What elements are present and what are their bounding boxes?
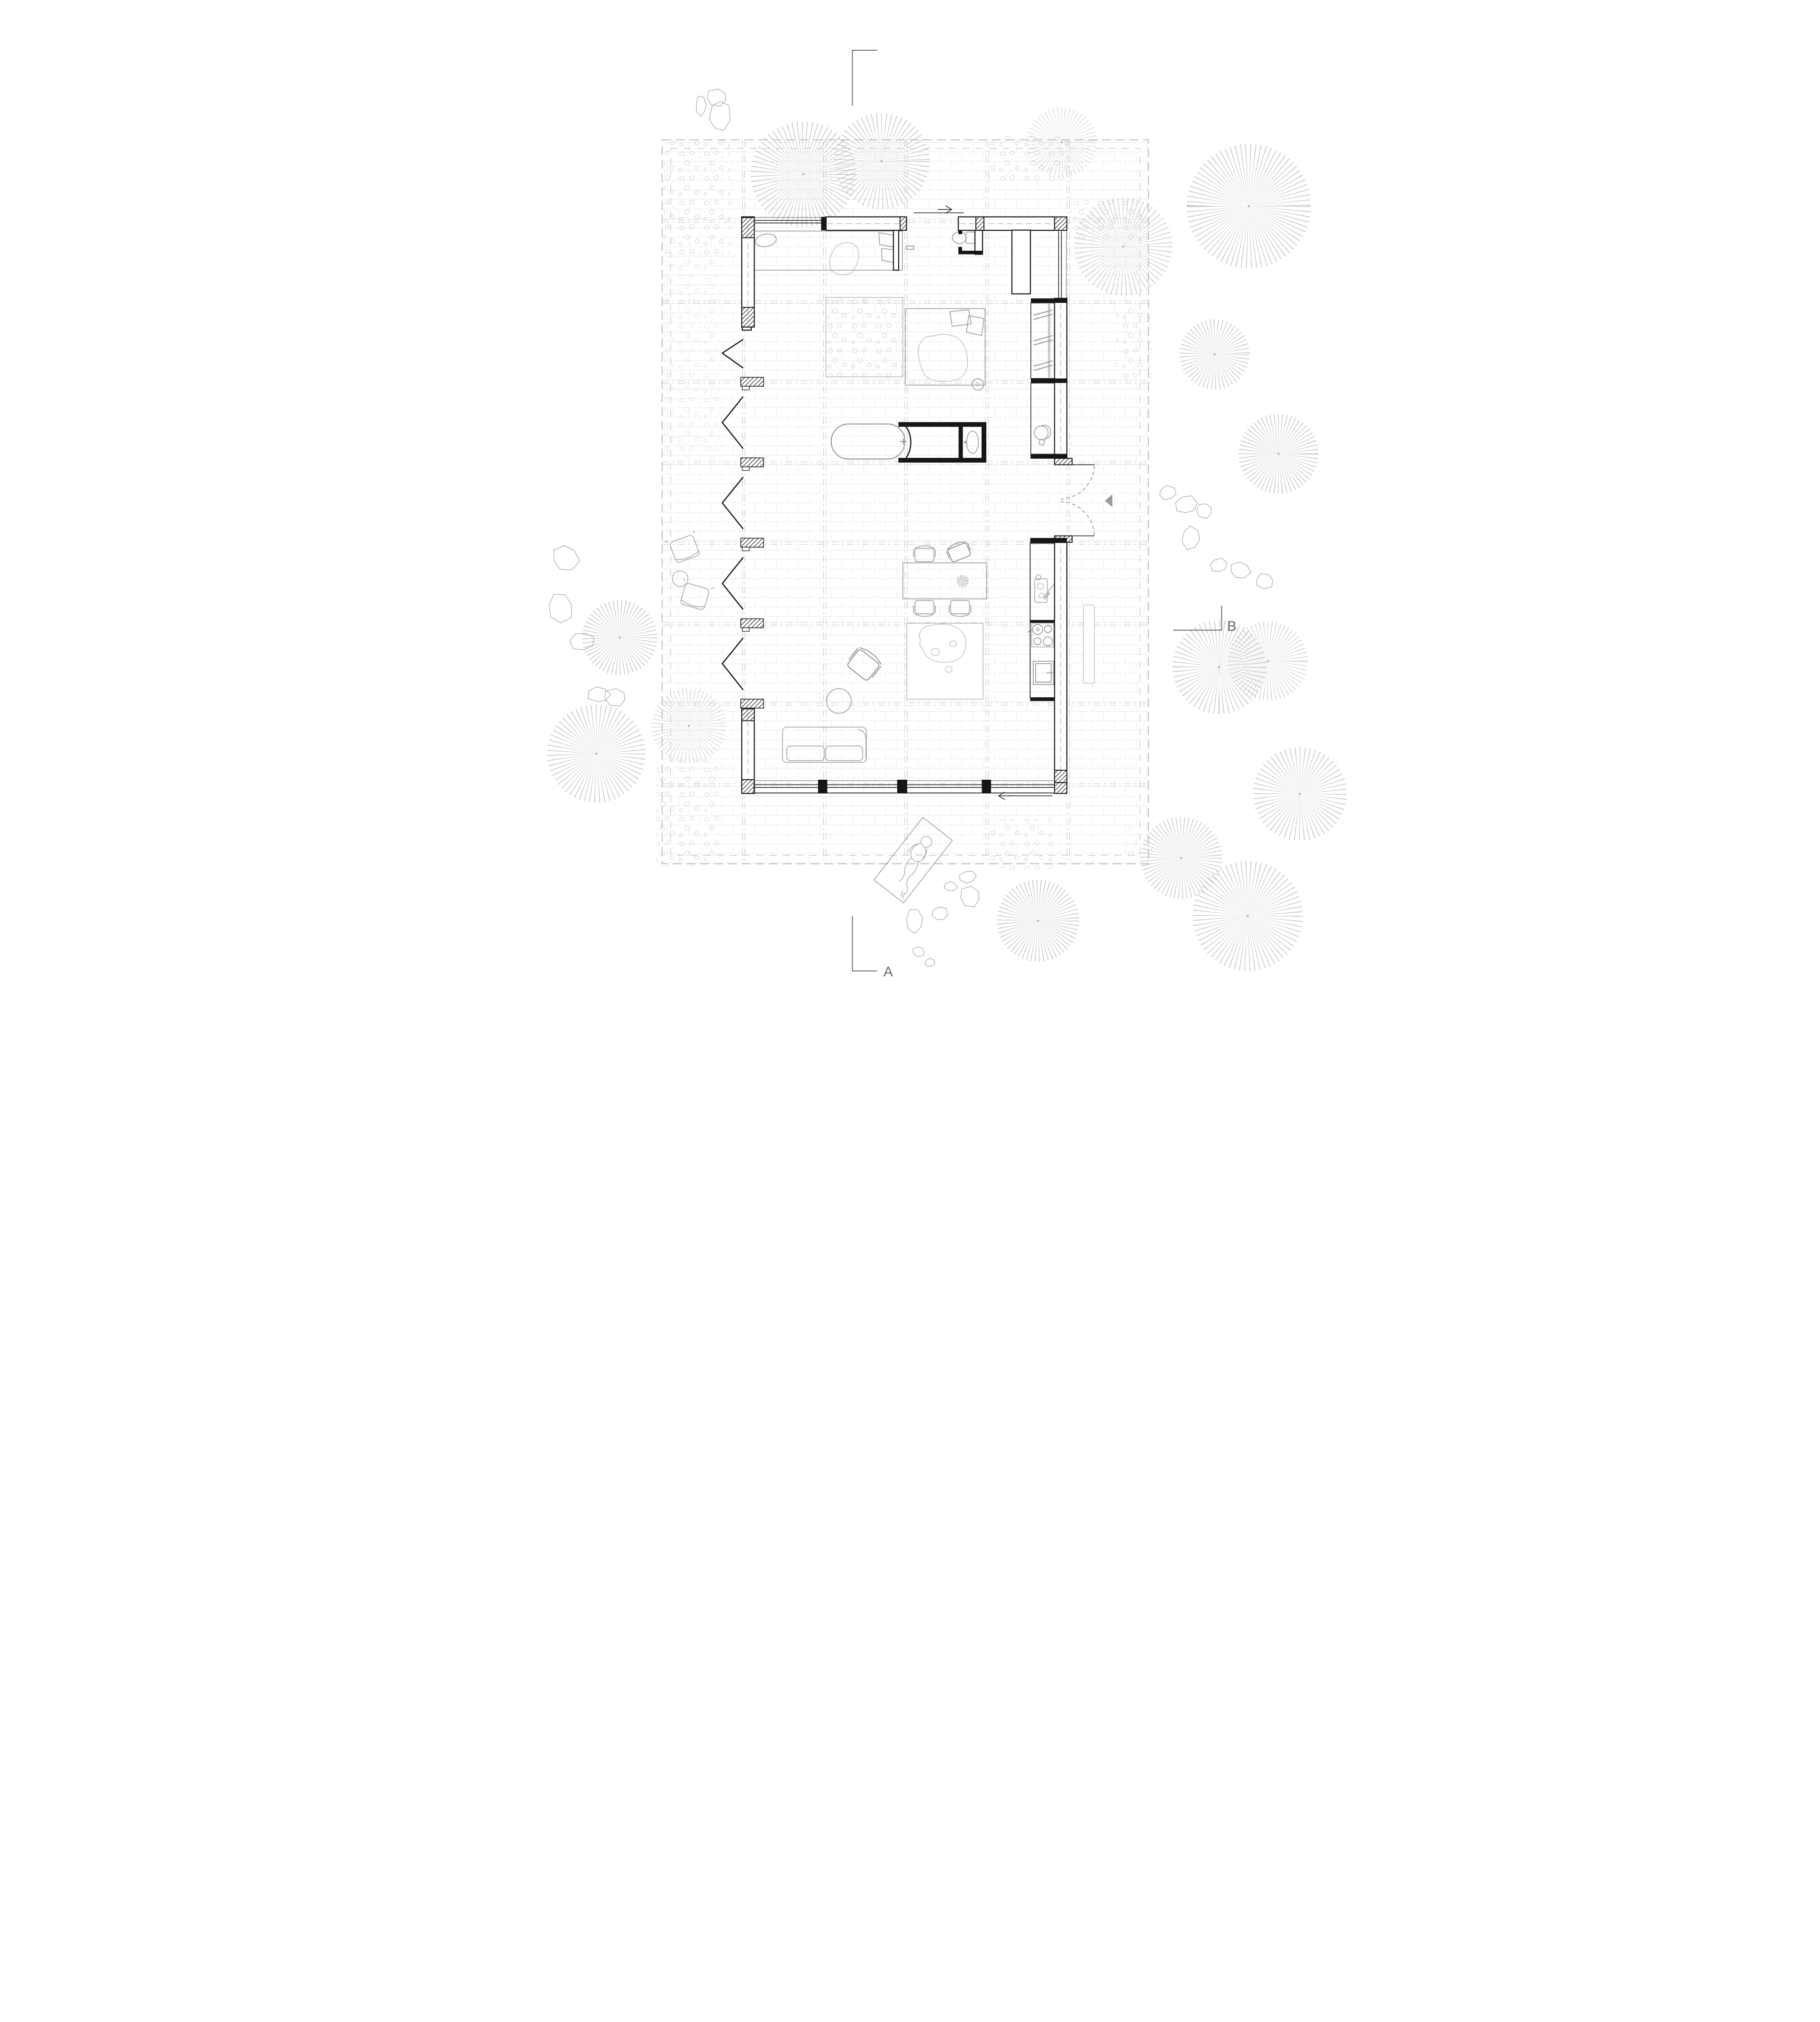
facade-post bbox=[741, 699, 764, 708]
rock bbox=[570, 633, 594, 650]
facade-post bbox=[741, 538, 764, 547]
facade-post bbox=[741, 458, 764, 467]
rock bbox=[1160, 485, 1176, 500]
rock bbox=[1231, 562, 1251, 578]
vegetation-patch bbox=[1126, 822, 1149, 865]
rock bbox=[944, 882, 957, 891]
west-wall-north bbox=[742, 217, 755, 330]
rock bbox=[925, 958, 935, 967]
rock bbox=[1197, 504, 1211, 519]
rock bbox=[696, 96, 706, 117]
vegetation-patch bbox=[663, 141, 731, 259]
outdoor-bench bbox=[1083, 605, 1094, 683]
floor-plan-page: A B bbox=[455, 0, 1365, 1011]
vegetation-patch bbox=[664, 260, 720, 460]
rock bbox=[932, 907, 947, 920]
vegetation-patch bbox=[990, 819, 1054, 870]
rock bbox=[913, 947, 924, 956]
rock bbox=[1210, 558, 1227, 572]
planting-bed-north bbox=[826, 298, 903, 377]
section-label-b: B bbox=[1227, 619, 1237, 634]
rock bbox=[960, 871, 976, 883]
rock bbox=[1257, 574, 1273, 589]
section-a-marker-bottom bbox=[853, 916, 877, 971]
rock bbox=[554, 546, 580, 570]
floor-plan-drawing: A B bbox=[455, 0, 1365, 1011]
vegetation-patch bbox=[1116, 307, 1152, 382]
rock bbox=[961, 886, 979, 907]
rock bbox=[588, 687, 611, 701]
desk bbox=[1012, 230, 1030, 294]
facade-post bbox=[741, 619, 764, 628]
facade-post bbox=[741, 377, 764, 386]
section-b-marker bbox=[1173, 606, 1222, 630]
planting-bed-south bbox=[907, 623, 983, 699]
rock bbox=[549, 594, 572, 623]
rock bbox=[907, 910, 923, 934]
rock bbox=[1182, 526, 1200, 550]
section-a-marker-top bbox=[853, 50, 877, 106]
section-label-a: A bbox=[883, 964, 893, 980]
rock bbox=[1175, 496, 1197, 513]
vegetation-patch bbox=[656, 760, 719, 866]
